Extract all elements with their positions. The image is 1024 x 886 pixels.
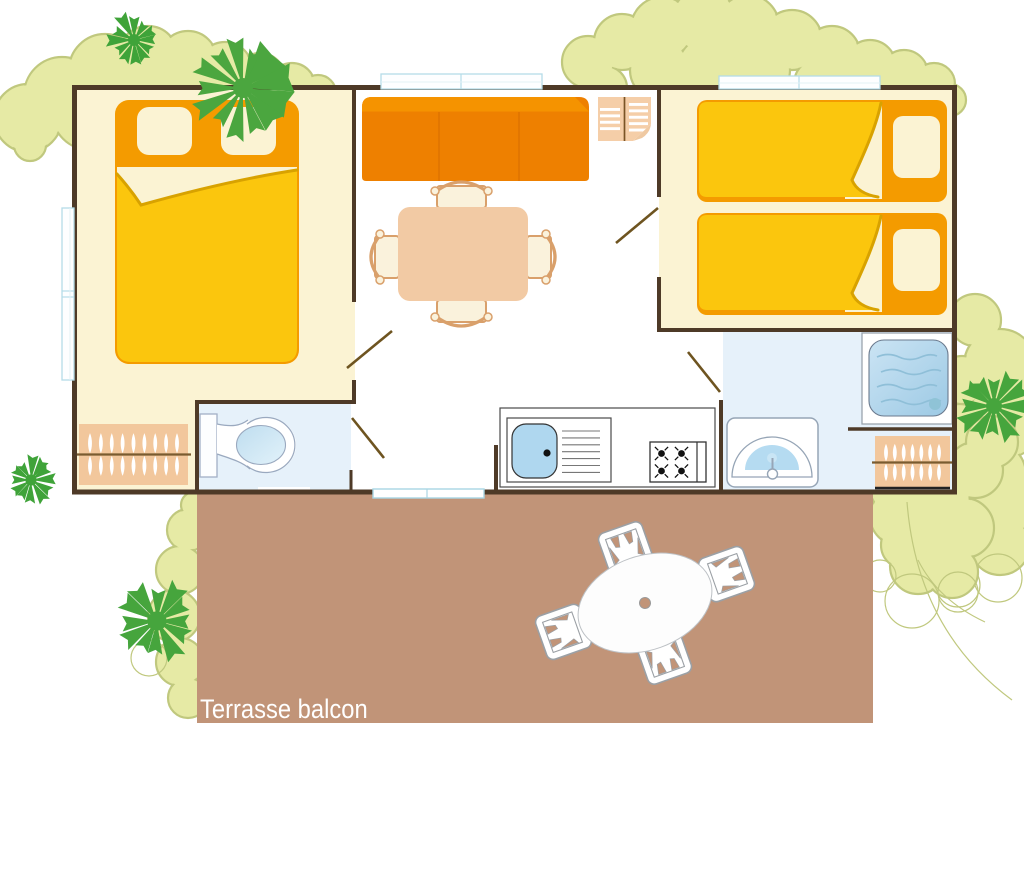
- svg-text:Terrasse balcon: Terrasse balcon: [200, 695, 368, 725]
